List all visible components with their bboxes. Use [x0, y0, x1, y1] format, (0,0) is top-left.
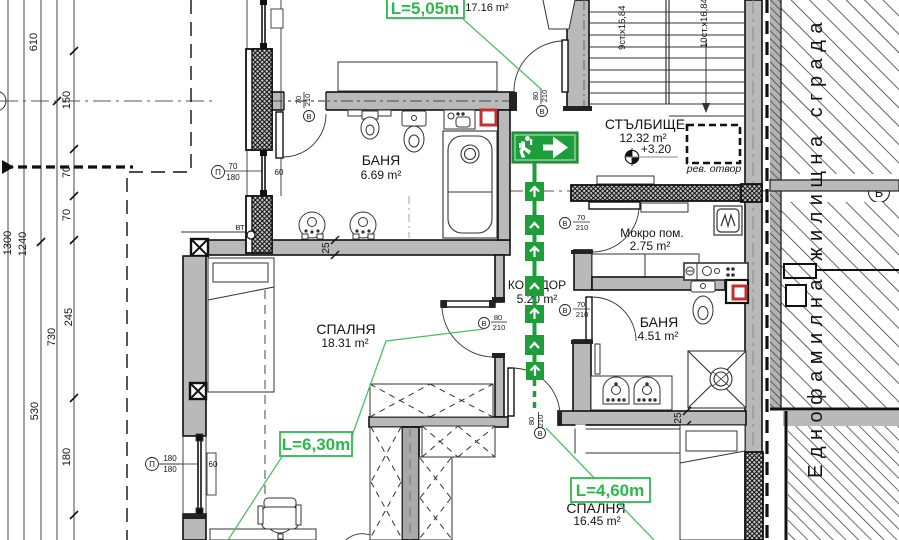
svg-text:210: 210	[576, 223, 589, 232]
svg-text:70: 70	[294, 96, 303, 104]
svg-text:10ст.х16,84: 10ст.х16,84	[699, 0, 710, 48]
svg-text:ВТ: ВТ	[235, 223, 245, 232]
svg-text:25: 25	[673, 412, 684, 424]
svg-text:60: 60	[209, 460, 218, 469]
svg-text:180: 180	[163, 454, 177, 463]
svg-text:80: 80	[527, 417, 536, 425]
svg-text:П: П	[149, 460, 155, 469]
svg-text:70: 70	[577, 213, 585, 222]
svg-text:9ст.х16,84: 9ст.х16,84	[617, 6, 628, 51]
svg-text:610: 610	[28, 33, 40, 51]
svg-text:2.75 m²: 2.75 m²	[630, 239, 671, 253]
svg-text:4.51 m²: 4.51 m²	[638, 329, 679, 343]
svg-text:Еднофамилна жилищна сграда: Еднофамилна жилищна сграда	[805, 16, 827, 478]
svg-text:1240: 1240	[17, 232, 29, 256]
svg-text:70: 70	[61, 209, 73, 221]
svg-text:В: В	[562, 219, 567, 228]
svg-text:180: 180	[163, 465, 177, 474]
svg-text:Мокро пом.: Мокро пом.	[620, 226, 684, 240]
svg-text:17.16 m²: 17.16 m²	[465, 2, 509, 14]
svg-text:530: 530	[29, 402, 41, 420]
svg-text:16.45 m²: 16.45 m²	[573, 514, 620, 528]
svg-text:80: 80	[531, 92, 540, 100]
svg-text:БАНЯ: БАНЯ	[640, 314, 678, 330]
svg-text:210: 210	[493, 323, 506, 332]
svg-text:+3.20: +3.20	[641, 142, 672, 156]
svg-text:70: 70	[229, 162, 238, 171]
svg-text:В: В	[481, 319, 486, 328]
svg-text:210: 210	[576, 310, 589, 319]
svg-text:L=6,30m: L=6,30m	[282, 435, 351, 454]
svg-text:25: 25	[321, 242, 332, 254]
svg-text:рев. отвор: рев. отвор	[686, 163, 742, 175]
svg-text:70: 70	[577, 300, 585, 309]
svg-text:П: П	[215, 168, 221, 177]
svg-text:60: 60	[275, 168, 284, 177]
svg-text:210: 210	[303, 94, 312, 107]
svg-text:210: 210	[540, 90, 549, 103]
svg-text:730: 730	[46, 328, 58, 346]
svg-text:СПАЛНЯ: СПАЛНЯ	[316, 321, 375, 337]
svg-text:180: 180	[61, 448, 73, 466]
svg-text:6.69 m²: 6.69 m²	[361, 168, 402, 182]
svg-text:1300: 1300	[2, 231, 14, 255]
svg-text:В: В	[562, 306, 567, 315]
svg-text:В: В	[537, 429, 542, 438]
svg-text:L=4,60m: L=4,60m	[576, 481, 645, 500]
svg-text:210: 210	[536, 415, 545, 428]
svg-text:18.31 m²: 18.31 m²	[321, 336, 368, 350]
svg-text:БАНЯ: БАНЯ	[362, 152, 400, 168]
svg-text:В: В	[306, 112, 311, 121]
svg-text:В: В	[539, 107, 544, 116]
svg-text:150: 150	[61, 91, 73, 109]
svg-text:L=5,05m: L=5,05m	[391, 0, 460, 18]
svg-text:245: 245	[63, 308, 75, 326]
svg-text:80: 80	[494, 313, 502, 322]
svg-text:180: 180	[226, 173, 240, 182]
svg-text:СТЪЛБИЩЕ: СТЪЛБИЩЕ	[605, 116, 685, 132]
